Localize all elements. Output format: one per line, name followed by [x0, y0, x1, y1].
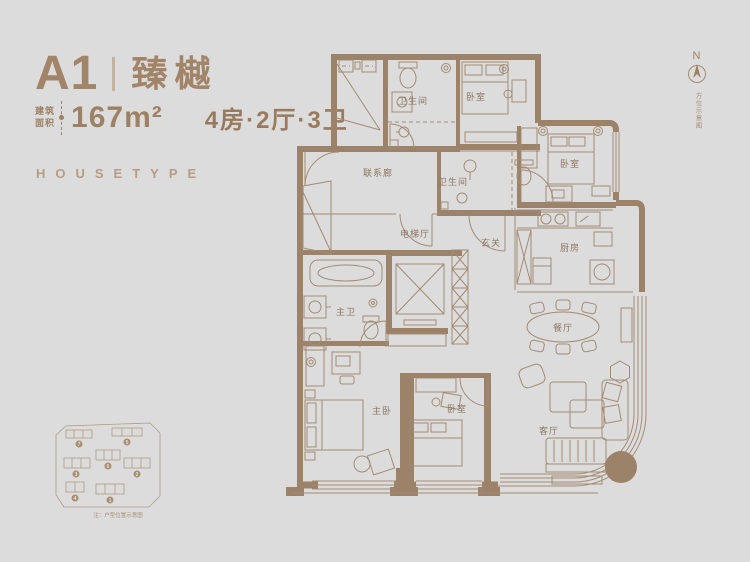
shaft-vent-grille: [388, 334, 446, 346]
room-bath-2: 卫生间: [438, 152, 572, 210]
room-label-foyer: 玄关: [481, 237, 501, 248]
room-label-kitchen: 厨房: [560, 242, 580, 253]
equipment-platform: [303, 60, 380, 254]
floorplan-page: A1 臻樾 建筑 面积 167m² 4房·2厅·3卫 HOUSETYPE N 方…: [0, 0, 750, 562]
room-kitchen: 厨房: [517, 210, 614, 284]
room-bedroom-1: 卧室: [462, 62, 526, 142]
siteplan-building-number: 7: [78, 442, 81, 448]
room-bedroom-3: 卧室: [410, 378, 467, 466]
shaft-hatch-cells: [452, 250, 468, 344]
exterior-walls: [286, 57, 642, 496]
siteplan-caption: 注：户型位置示意图: [93, 511, 143, 519]
room-label-dining: 餐厅: [553, 322, 573, 333]
room-bath-1: 卫生间: [388, 62, 455, 148]
siteplan-building-number: 3: [75, 472, 78, 478]
room-dining: 餐厅: [527, 300, 632, 354]
room-foyer: 玄关: [481, 237, 501, 248]
room-label-living: 客厅: [539, 425, 559, 436]
room-label-elevator-hall: 电梯厅: [400, 228, 430, 239]
siteplan-building-number: 2: [136, 472, 139, 478]
room-living: 客厅: [517, 361, 637, 484]
room-elevator-hall: 电梯厅: [400, 228, 430, 239]
siteplan-building-number: 5: [126, 440, 129, 446]
siteplan-building-number: 1: [109, 498, 112, 504]
siteplan-buildings: 7 5 6 3 2 4 1: [64, 428, 150, 504]
room-label-corridor: 联系廊: [363, 167, 393, 178]
elevator-shaft: [386, 250, 468, 346]
room-label-bath-1: 卫生间: [398, 95, 428, 106]
siteplan-building-number: 6: [107, 464, 110, 470]
structural-column: [605, 451, 637, 483]
room-label-bedroom-1: 卧室: [466, 91, 486, 102]
room-label-bedroom-2: 卧室: [560, 158, 580, 169]
room-label-master-bedroom: 主卧: [372, 405, 392, 416]
room-master-bath: 主卫: [304, 260, 382, 350]
room-label-master-bath: 主卫: [336, 306, 356, 317]
room-master-bedroom: 主卧: [305, 346, 395, 475]
room-corridor: 联系廊: [363, 167, 393, 178]
room-label-bedroom-3: 卧室: [447, 403, 467, 414]
siteplan-thumbnail: 7 5 6 3 2 4 1 注：户型位置示意图: [50, 418, 170, 523]
room-label-bath-2: 卫生间: [438, 176, 468, 187]
siteplan-building-number: 4: [74, 496, 77, 502]
